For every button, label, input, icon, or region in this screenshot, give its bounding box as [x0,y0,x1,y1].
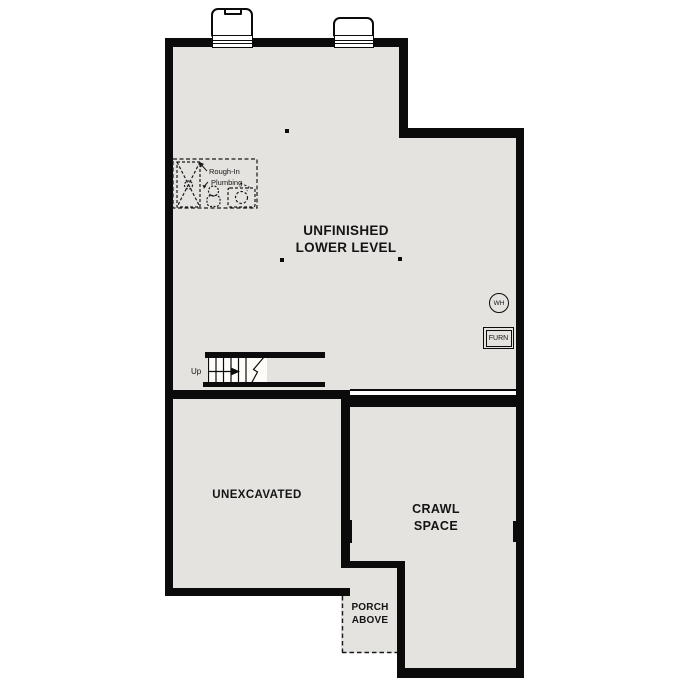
floor-fill-upper [165,38,408,138]
room-label-unfinished-lower-level: UNFINISHED LOWER LEVEL [246,223,446,256]
furnace-inner-box: FURN [486,330,512,347]
window-well-left-notch [224,8,242,15]
floor-plan: WH FURN UNFINISHED LOWER LEVEL UNEXCAVAT… [0,0,687,687]
room-label-line: UNEXCAVATED [177,489,337,501]
wall-mid-left [165,390,350,399]
window-glass-line [213,40,252,41]
furnace-symbol: FURN [483,327,514,349]
plumbing-label-line2: Plumbing [211,178,242,187]
beam-pocket-left [341,520,352,543]
window-glass-line [213,43,252,44]
room-label-line: ABOVE [338,615,402,628]
water-heater-symbol: WH [489,293,509,313]
column-dot [398,257,402,261]
room-label-line: SPACE [376,518,496,535]
wall-mid-right [350,395,524,407]
room-label-line: CRAWL [376,501,496,518]
window-glass-line [335,43,373,44]
wall-porch-top [341,561,405,568]
stairs-up-label: Up [191,367,201,376]
water-heater-label: WH [494,300,505,307]
wall-bottom [397,668,524,678]
plumbing-label-line1: Rough-In [209,167,240,176]
window-well-right [333,17,374,37]
room-label-line: UNFINISHED [246,223,446,240]
room-label-unexcavated: UNEXCAVATED [177,489,337,501]
window-glass-line [335,40,373,41]
room-label-porch-above: PORCH ABOVE [338,602,402,627]
furnace-label: FURN [489,335,508,342]
egress-window-right [334,35,374,48]
wall-step [399,128,524,138]
wall-left [165,38,173,596]
stair-well [207,358,267,383]
wall-unexcavated-bottom [165,588,350,596]
room-label-line: PORCH [338,602,402,615]
column-dot [280,258,284,262]
wall-upper-right [399,38,408,138]
room-label-crawl-space: CRAWL SPACE [376,501,496,535]
stair-wall-bottom [203,382,325,387]
egress-window-left [212,35,253,48]
column-dot [285,129,289,133]
beam-pocket-right [513,521,524,542]
room-label-line: LOWER LEVEL [246,240,446,257]
